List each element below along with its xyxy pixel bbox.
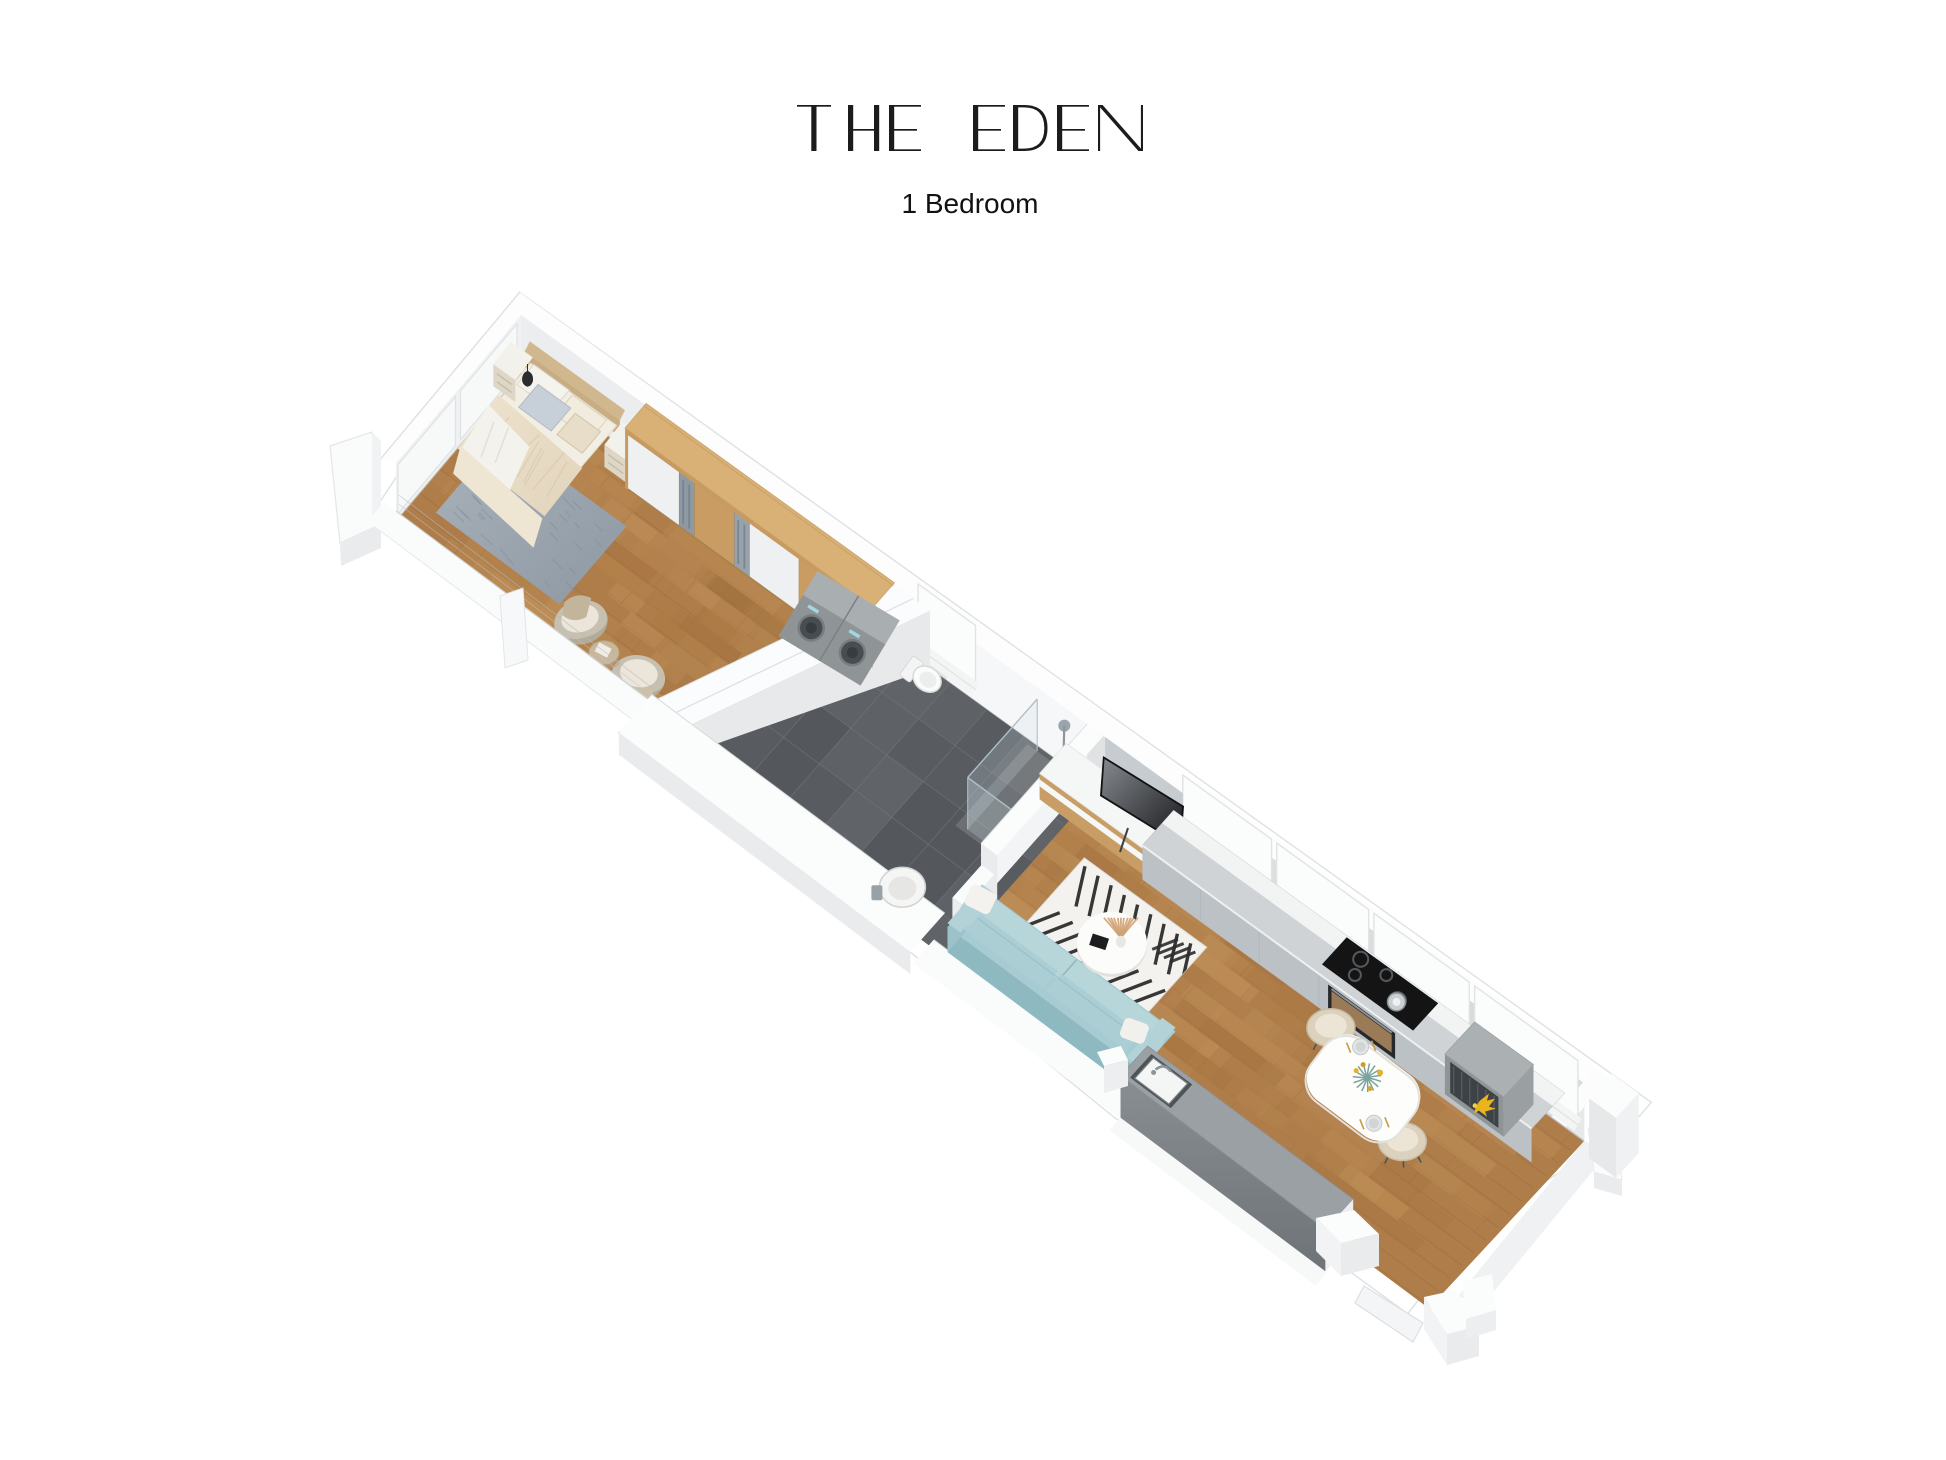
svg-text:1 Bedroom: 1 Bedroom: [902, 188, 1039, 219]
